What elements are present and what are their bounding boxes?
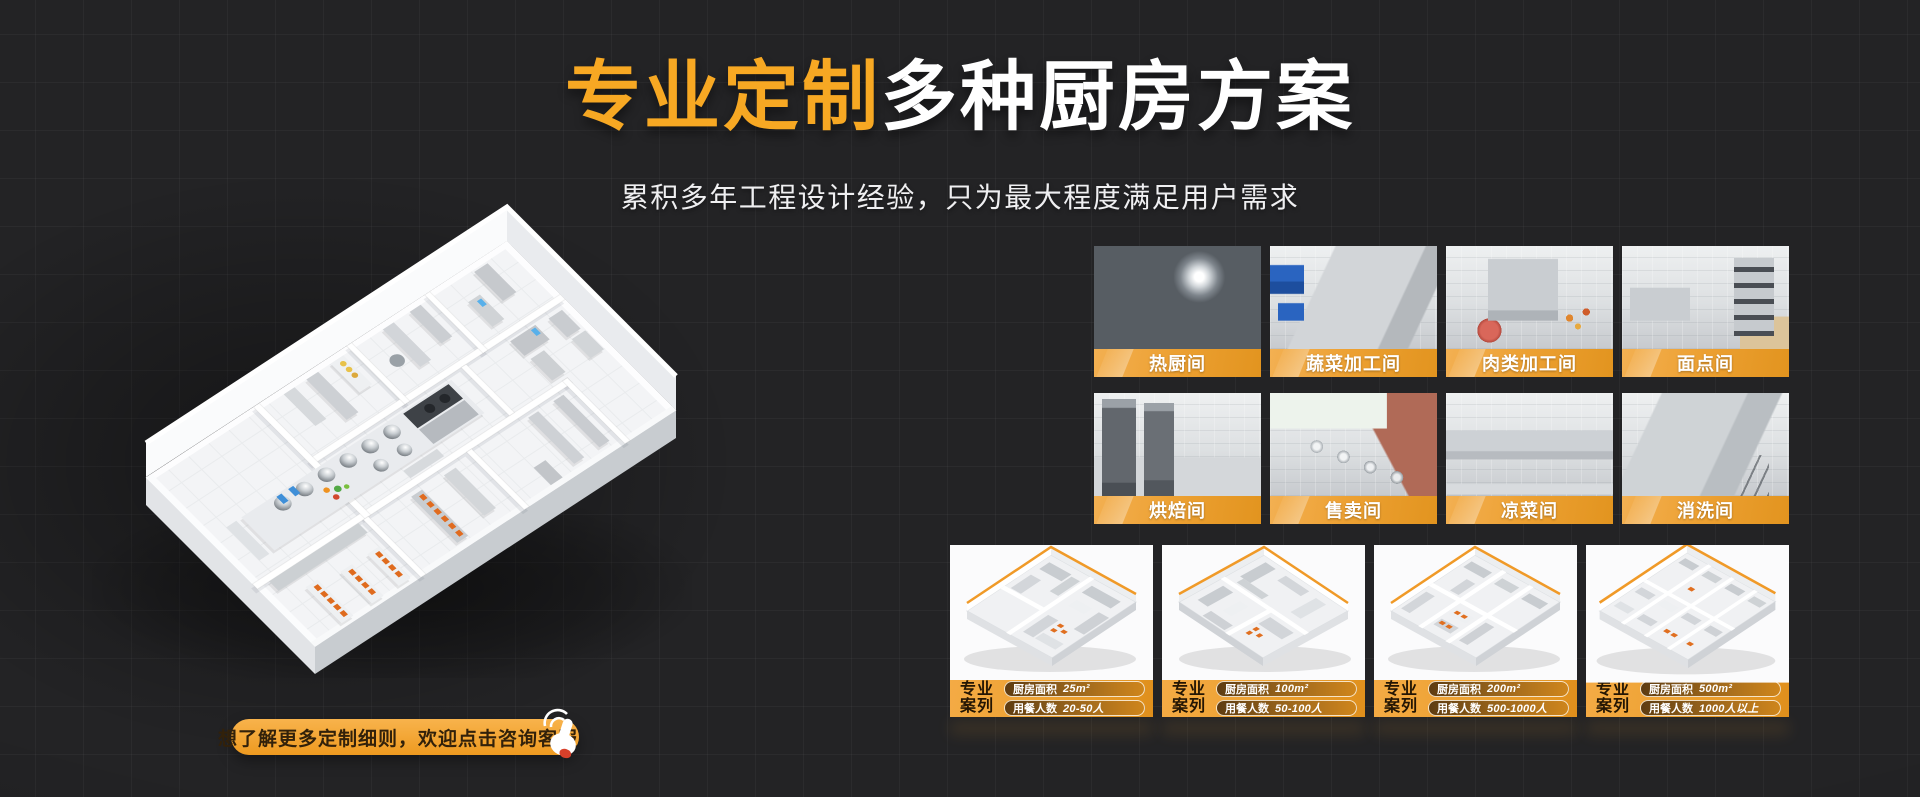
room-photo <box>1094 246 1261 349</box>
diner-count-pill: 用餐人数50-100人 <box>1216 700 1357 716</box>
capacity-value: 20-50人 <box>1063 700 1104 716</box>
kitchen-area-pill: 厨房面积500m² <box>1640 681 1781 697</box>
area-label: 厨房面积 <box>1649 681 1693 697</box>
case-specs: 厨房面积200m² 用餐人数500-1000人 <box>1428 681 1569 716</box>
case-tag: 专业案列 <box>1172 682 1208 716</box>
room-label: 肉类加工间 <box>1446 349 1613 377</box>
case-footer: 专业案列 厨房面积25m² 用餐人数20-50人 <box>950 680 1153 717</box>
room-label: 热厨间 <box>1094 349 1261 377</box>
consult-cta-label: 想了解更多定制细则，欢迎点击咨询客服 <box>218 724 592 751</box>
room-photo <box>1446 393 1613 496</box>
room-photo <box>1270 246 1437 349</box>
case-footer: 专业案列 厨房面积200m² 用餐人数500-1000人 <box>1374 680 1577 717</box>
capacity-value: 500-1000人 <box>1487 700 1547 716</box>
capacity-label: 用餐人数 <box>1013 700 1057 716</box>
area-label: 厨房面积 <box>1013 681 1057 697</box>
area-value: 200m² <box>1487 683 1520 695</box>
capacity-label: 用餐人数 <box>1649 700 1693 716</box>
room-card-hot-kitchen[interactable]: 热厨间 <box>1094 246 1261 377</box>
room-photo <box>1622 393 1789 496</box>
case-tag: 专业案列 <box>1596 682 1632 716</box>
capacity-label: 用餐人数 <box>1225 700 1269 716</box>
capacity-label: 用餐人数 <box>1437 700 1481 716</box>
area-value: 500m² <box>1699 683 1732 695</box>
promo-banner: 专业定制多种厨房方案 累积多年工程设计经验，只为最大程度满足用户需求 <box>0 0 1920 797</box>
area-label: 厨房面积 <box>1225 681 1269 697</box>
case-card-200sqm[interactable]: 专业案列 厨房面积200m² 用餐人数500-1000人 <box>1374 545 1577 717</box>
case-specs: 厨房面积100m² 用餐人数50-100人 <box>1216 681 1357 716</box>
case-card-row: 专业案列 厨房面积25m² 用餐人数20-50人 <box>950 545 1789 717</box>
page-title-highlight: 专业定制 <box>565 55 881 140</box>
diner-count-pill: 用餐人数1000人以上 <box>1640 700 1781 716</box>
room-label: 蔬菜加工间 <box>1270 349 1437 377</box>
room-photo <box>1270 393 1437 496</box>
room-card-baking[interactable]: 烘焙间 <box>1094 393 1261 524</box>
room-card-serving[interactable]: 售卖间 <box>1270 393 1437 524</box>
consult-cta-button[interactable]: 想了解更多定制细则，欢迎点击咨询客服 <box>231 719 579 755</box>
case-thumbnail <box>1586 545 1789 680</box>
area-label: 厨房面积 <box>1437 681 1481 697</box>
case-specs: 厨房面积25m² 用餐人数20-50人 <box>1004 681 1145 716</box>
kitchen-area-pill: 厨房面积200m² <box>1428 681 1569 697</box>
area-value: 25m² <box>1063 683 1090 695</box>
diner-count-pill: 用餐人数20-50人 <box>1004 700 1145 716</box>
kitchen-floorplan-illustration <box>92 168 692 678</box>
room-label: 凉菜间 <box>1446 496 1613 524</box>
room-card-pastry[interactable]: 面点间 <box>1622 246 1789 377</box>
area-value: 100m² <box>1275 683 1308 695</box>
capacity-value: 50-100人 <box>1275 700 1322 716</box>
room-photo <box>1094 393 1261 496</box>
case-thumbnail <box>1162 545 1365 680</box>
case-tag: 专业案列 <box>1384 682 1420 716</box>
page-title-rest: 多种厨房方案 <box>881 55 1355 140</box>
room-photo <box>1622 246 1789 349</box>
case-card-reflections <box>950 723 1789 739</box>
room-card-meat-processing[interactable]: 肉类加工间 <box>1446 246 1613 377</box>
room-card-vegetable-processing[interactable]: 蔬菜加工间 <box>1270 246 1437 377</box>
case-footer: 专业案列 厨房面积500m² 用餐人数1000人以上 <box>1586 680 1789 717</box>
room-label: 面点间 <box>1622 349 1789 377</box>
click-hand-icon <box>537 706 589 762</box>
case-specs: 厨房面积500m² 用餐人数1000人以上 <box>1640 681 1781 716</box>
page-title: 专业定制多种厨房方案 <box>565 58 1355 138</box>
case-card-100sqm[interactable]: 专业案列 厨房面积100m² 用餐人数50-100人 <box>1162 545 1365 717</box>
room-label: 烘焙间 <box>1094 496 1261 524</box>
room-label: 售卖间 <box>1270 496 1437 524</box>
case-footer: 专业案列 厨房面积100m² 用餐人数50-100人 <box>1162 680 1365 717</box>
kitchen-area-pill: 厨房面积100m² <box>1216 681 1357 697</box>
room-photo <box>1446 246 1613 349</box>
case-thumbnail <box>950 545 1153 680</box>
capacity-value: 1000人以上 <box>1699 700 1759 716</box>
room-label: 消洗间 <box>1622 496 1789 524</box>
case-thumbnail <box>1374 545 1577 680</box>
kitchen-area-pill: 厨房面积25m² <box>1004 681 1145 697</box>
case-tag: 专业案列 <box>960 682 996 716</box>
case-card-25sqm[interactable]: 专业案列 厨房面积25m² 用餐人数20-50人 <box>950 545 1153 717</box>
room-card-cold-dish[interactable]: 凉菜间 <box>1446 393 1613 524</box>
room-card-grid: 热厨间 蔬菜加工间 肉类加工间 面点间 烘焙间 售卖间 凉菜间 消洗间 <box>1094 246 1789 524</box>
room-card-dishwashing[interactable]: 消洗间 <box>1622 393 1789 524</box>
case-card-500sqm[interactable]: 专业案列 厨房面积500m² 用餐人数1000人以上 <box>1586 545 1789 717</box>
diner-count-pill: 用餐人数500-1000人 <box>1428 700 1569 716</box>
page-subtitle: 累积多年工程设计经验，只为最大程度满足用户需求 <box>621 176 1300 216</box>
